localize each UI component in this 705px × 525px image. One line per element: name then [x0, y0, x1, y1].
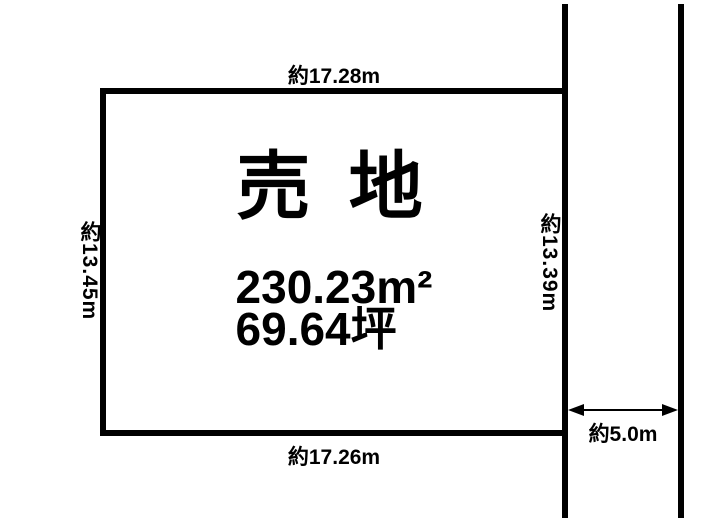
area-tsubo-label: 69.64坪 [236, 308, 433, 350]
dimension-right-label: 約13.39m [534, 213, 564, 312]
arrowhead-right-icon [662, 404, 678, 416]
dimension-left-label: 約13.45m [74, 221, 104, 320]
land-plot-diagram: 売 地 230.23m² 69.64坪 約17.28m 約17.26m 約13.… [0, 0, 705, 525]
road-right-edge-line [678, 4, 684, 518]
road-width-arrow [568, 403, 678, 417]
arrow-shaft [580, 409, 666, 411]
dimension-bottom-label: 約17.26m [100, 441, 568, 471]
arrowhead-left-icon [568, 404, 584, 416]
road-width-label: 約5.0m [568, 418, 678, 448]
dimension-top-label: 約17.28m [100, 60, 568, 90]
plot-title: 売 地 [100, 146, 568, 227]
area-block: 230.23m² 69.64坪 [100, 266, 568, 351]
area-square-meters-label: 230.23m² [236, 266, 433, 308]
